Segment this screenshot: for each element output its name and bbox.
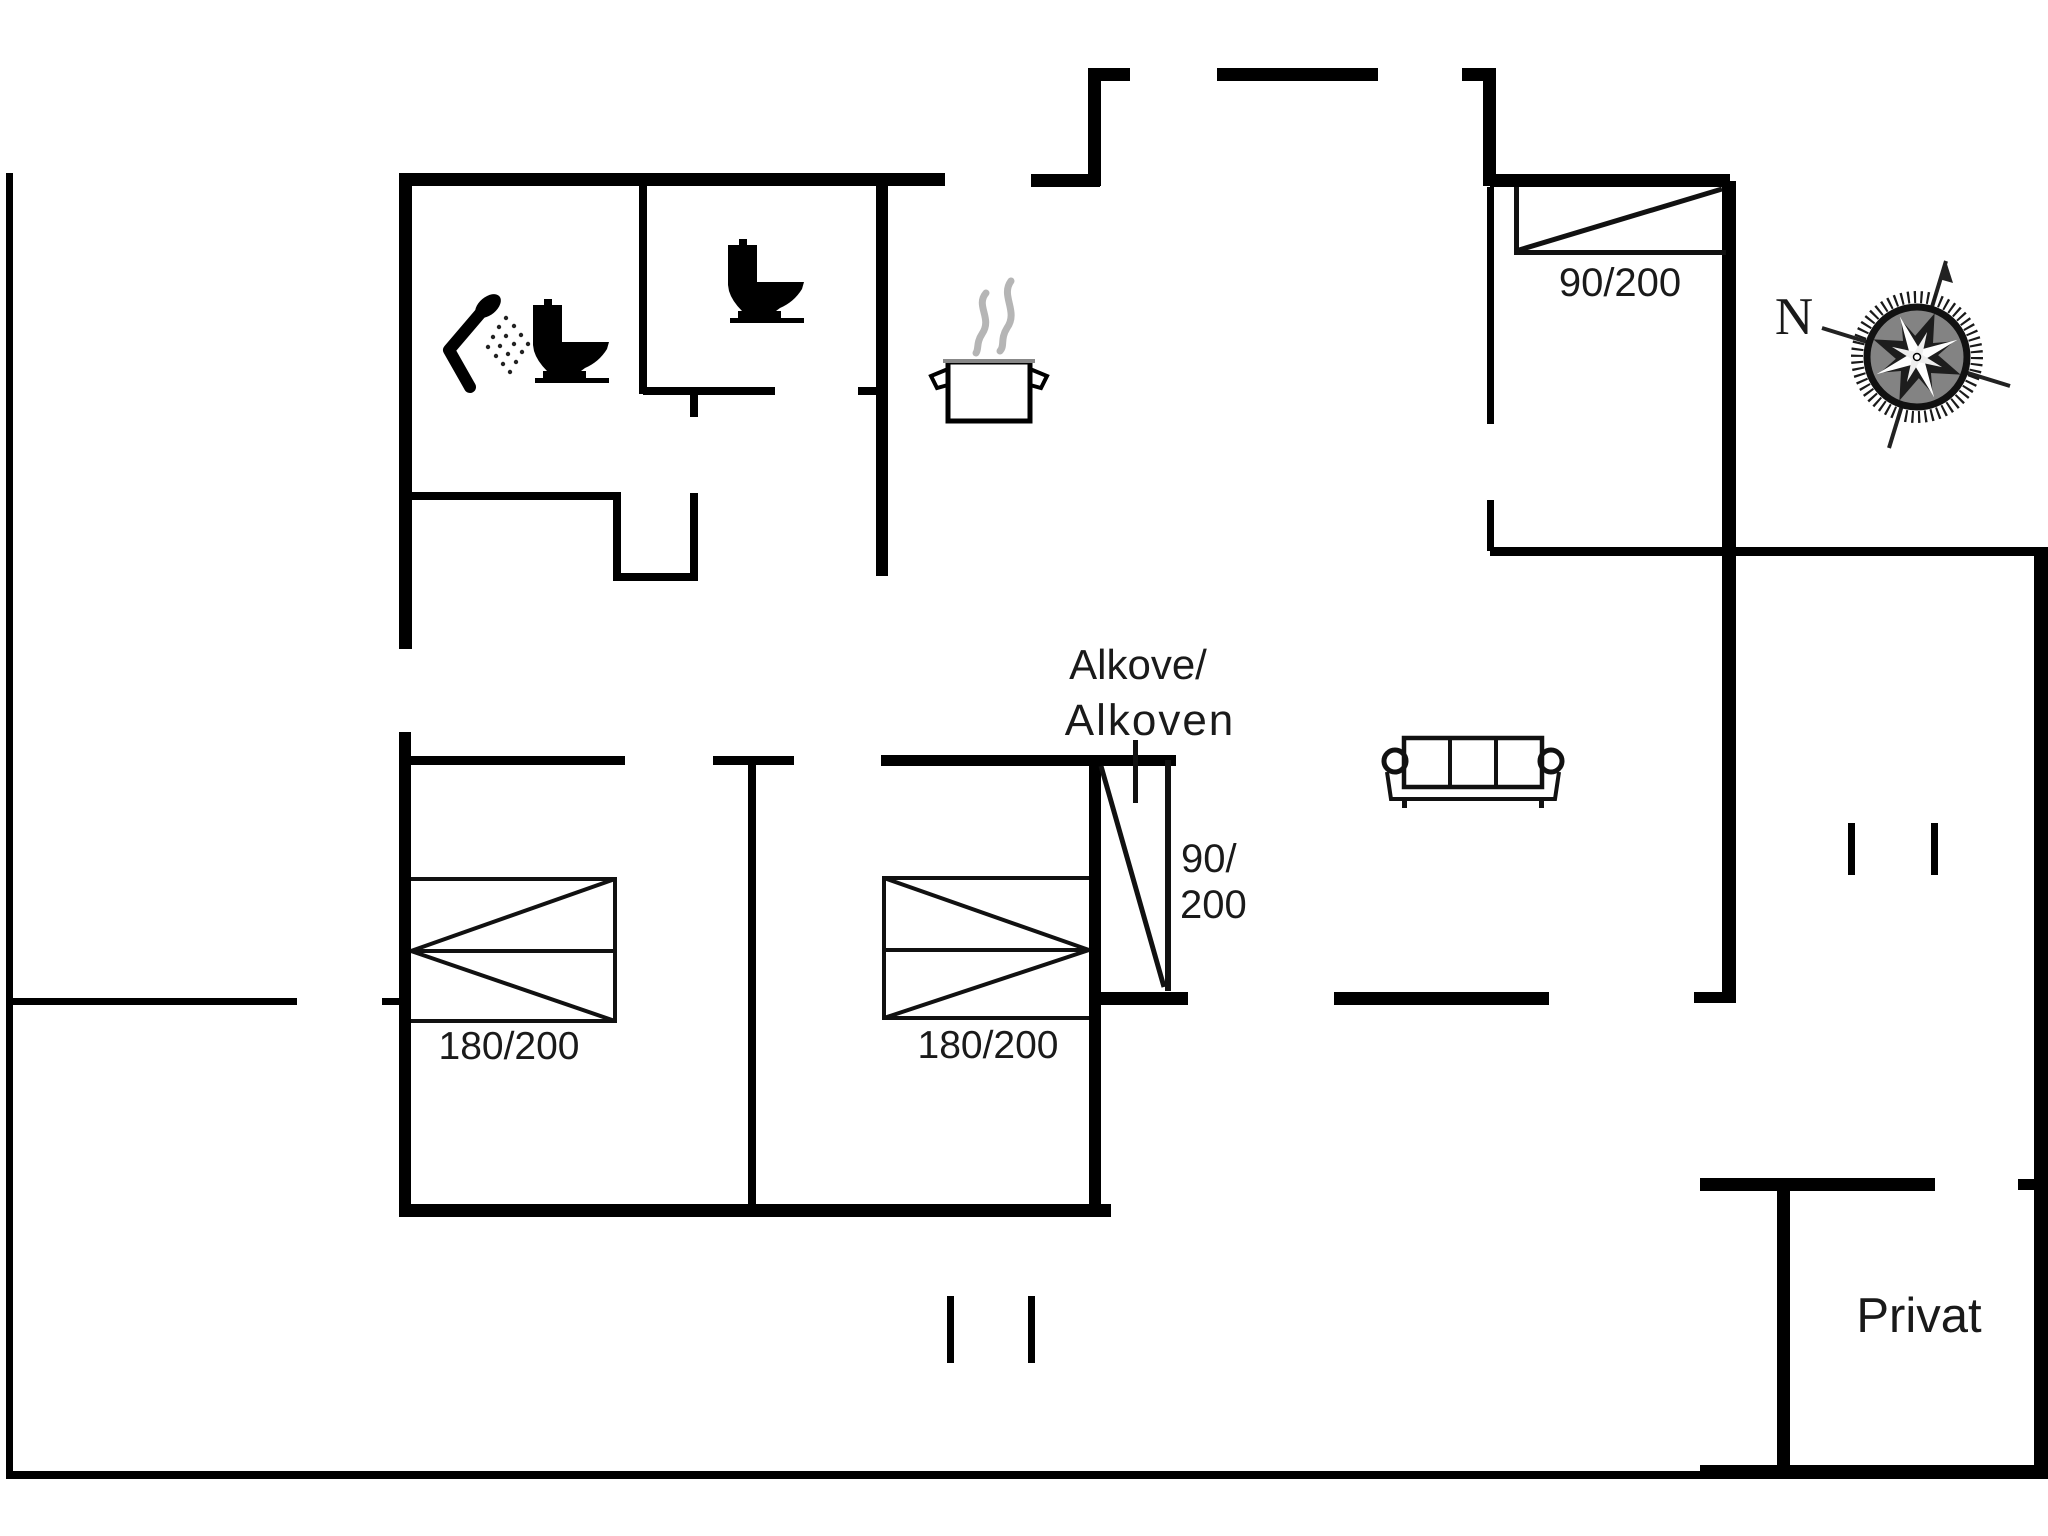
svg-text:Alkoven: Alkoven	[1065, 696, 1236, 745]
svg-text:180/200: 180/200	[918, 1024, 1059, 1067]
svg-text:200: 200	[1180, 883, 1247, 927]
svg-text:Alkove/: Alkove/	[1069, 641, 1207, 688]
svg-text:90/: 90/	[1181, 837, 1237, 881]
svg-text:N: N	[1775, 288, 1813, 346]
svg-text:90/200: 90/200	[1559, 261, 1681, 305]
svg-text:Privat: Privat	[1856, 1289, 1982, 1343]
svg-text:180/200: 180/200	[439, 1025, 580, 1068]
